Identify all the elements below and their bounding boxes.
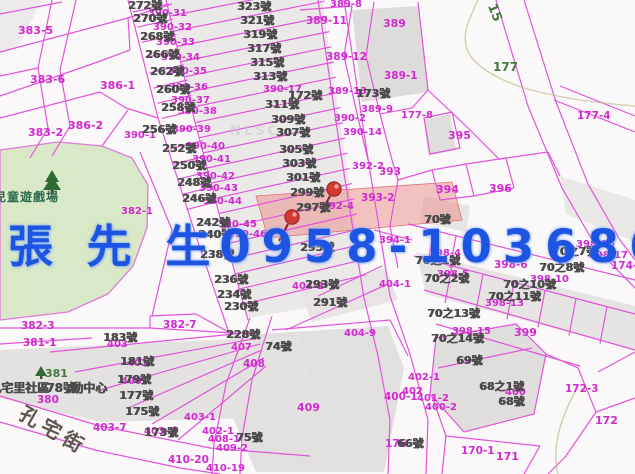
map-label: 172-3	[565, 384, 599, 395]
map-label: NLSC	[230, 125, 280, 139]
map-label: 236號	[214, 274, 248, 286]
map-label: 381-1	[23, 338, 57, 349]
map-label: 410-19	[206, 464, 245, 474]
map-label: 孔宅里社區	[0, 382, 49, 395]
map-label: 319號	[243, 29, 277, 41]
advertiser-name: 張 先 生	[8, 220, 219, 273]
map-label: 315號	[250, 57, 284, 69]
map-label: 173號	[356, 88, 390, 100]
map-label: 409-2	[216, 444, 248, 455]
map-label: 75號	[236, 432, 262, 444]
map-label: 動中心	[71, 382, 107, 395]
map-label: 272號	[128, 0, 162, 12]
map-label: 395	[448, 130, 471, 142]
map-label: 175號	[125, 406, 159, 418]
map-label: 172號	[288, 90, 322, 102]
map-label: 兒童遊戲場	[0, 191, 59, 204]
map-label: 256號	[142, 124, 176, 136]
map-label: 399	[514, 327, 537, 339]
map-label: 389-8	[330, 0, 362, 11]
map-label: 383-6	[30, 74, 65, 86]
map-label: 68號	[498, 396, 524, 408]
map-label: 177-4	[577, 111, 611, 122]
map-label: 258號	[161, 102, 195, 114]
map-label: 66號	[397, 438, 423, 450]
map-label: 389-12	[326, 52, 367, 63]
map-label: 389-11	[306, 16, 347, 27]
map-label: 394	[436, 184, 459, 196]
map-label: 390-14	[343, 128, 382, 139]
map-label: 172	[595, 415, 618, 427]
map-label: 383-2	[28, 127, 63, 139]
map-label: 234號	[217, 289, 251, 301]
map-label: 262號	[150, 66, 184, 78]
map-label: 181號	[120, 356, 154, 368]
map-label: 321號	[240, 15, 274, 27]
map-label: 390-39	[172, 125, 211, 136]
map-label: 268號	[140, 31, 174, 43]
map-label: 266號	[145, 49, 179, 61]
map-label: 313號	[253, 71, 287, 83]
map-label: 402-1	[408, 373, 440, 384]
map-label: 389	[383, 18, 406, 30]
map-label: 305號	[279, 144, 313, 156]
map-label: 孔宅街	[16, 403, 91, 459]
map-label: 303號	[282, 158, 316, 170]
map-label: 323號	[237, 1, 271, 13]
map-label: 179號	[117, 374, 151, 386]
map-label: 403-1	[184, 413, 216, 424]
map-label: 408	[243, 359, 265, 370]
map-label: 396	[489, 183, 512, 195]
map-label: 291號	[313, 297, 347, 309]
map-label: 386-2	[68, 120, 103, 132]
map-label: 246號	[182, 193, 216, 205]
map-label: 177	[493, 61, 518, 74]
map-label: 386-1	[100, 80, 135, 92]
map-label: 400-1	[384, 392, 418, 403]
map-label: 380	[37, 395, 59, 406]
map-label: 400-2	[425, 403, 457, 414]
map-label: 404-9	[344, 329, 376, 340]
map-label: 383-5	[18, 25, 53, 37]
map-label: 177-8	[401, 111, 433, 122]
map-label: 270號	[133, 13, 167, 25]
map-label: 230號	[224, 301, 258, 313]
map-label: 170-1	[461, 446, 495, 457]
map-label: 382-7	[163, 320, 197, 331]
map-label: 410-20	[168, 455, 209, 466]
map-label: 409	[297, 402, 320, 414]
map-canvas[interactable]: 383-5383-6386-1383-2386-2390-1382-1390-3…	[0, 0, 635, 474]
advertiser-phone: 0958-103680	[219, 220, 635, 273]
map-label: 183號	[103, 332, 137, 344]
map-label: 228號	[226, 329, 260, 341]
map-label: 307號	[276, 127, 310, 139]
map-label: 248號	[177, 177, 211, 189]
map-label: 403-7	[93, 423, 127, 434]
map-label: 299號	[290, 187, 324, 199]
map-label: 393	[379, 167, 401, 178]
map-label: 69號	[456, 355, 482, 367]
map-label: 70之13號	[427, 308, 480, 320]
map-label: 381	[45, 368, 68, 380]
map-label: 74號	[265, 341, 291, 353]
map-label: 390-2	[334, 114, 366, 125]
map-label: 68之1號	[479, 381, 524, 393]
map-label: 260號	[156, 84, 190, 96]
map-label: 252號	[162, 143, 196, 155]
map-label: 301號	[286, 172, 320, 184]
map-label: 404-1	[379, 280, 411, 291]
map-label: 250號	[172, 160, 206, 172]
map-label: 389-1	[384, 71, 418, 82]
map-label: 393-2	[361, 193, 395, 204]
map-label: 317號	[247, 43, 281, 55]
map-label: 70之10號	[503, 279, 556, 291]
map-label: 407	[231, 343, 252, 354]
map-label: 70之11號	[488, 291, 541, 303]
map-label: 382-3	[21, 321, 55, 332]
map-label: 171	[496, 451, 519, 463]
advertisement-overlay: 張 先 生0958-103680	[8, 210, 635, 275]
map-label: 15	[484, 2, 503, 24]
map-label: 293號	[305, 279, 339, 291]
map-label: 70之14號	[431, 333, 484, 345]
map-label: 177號	[119, 390, 153, 402]
map-label: 173號	[144, 427, 178, 439]
